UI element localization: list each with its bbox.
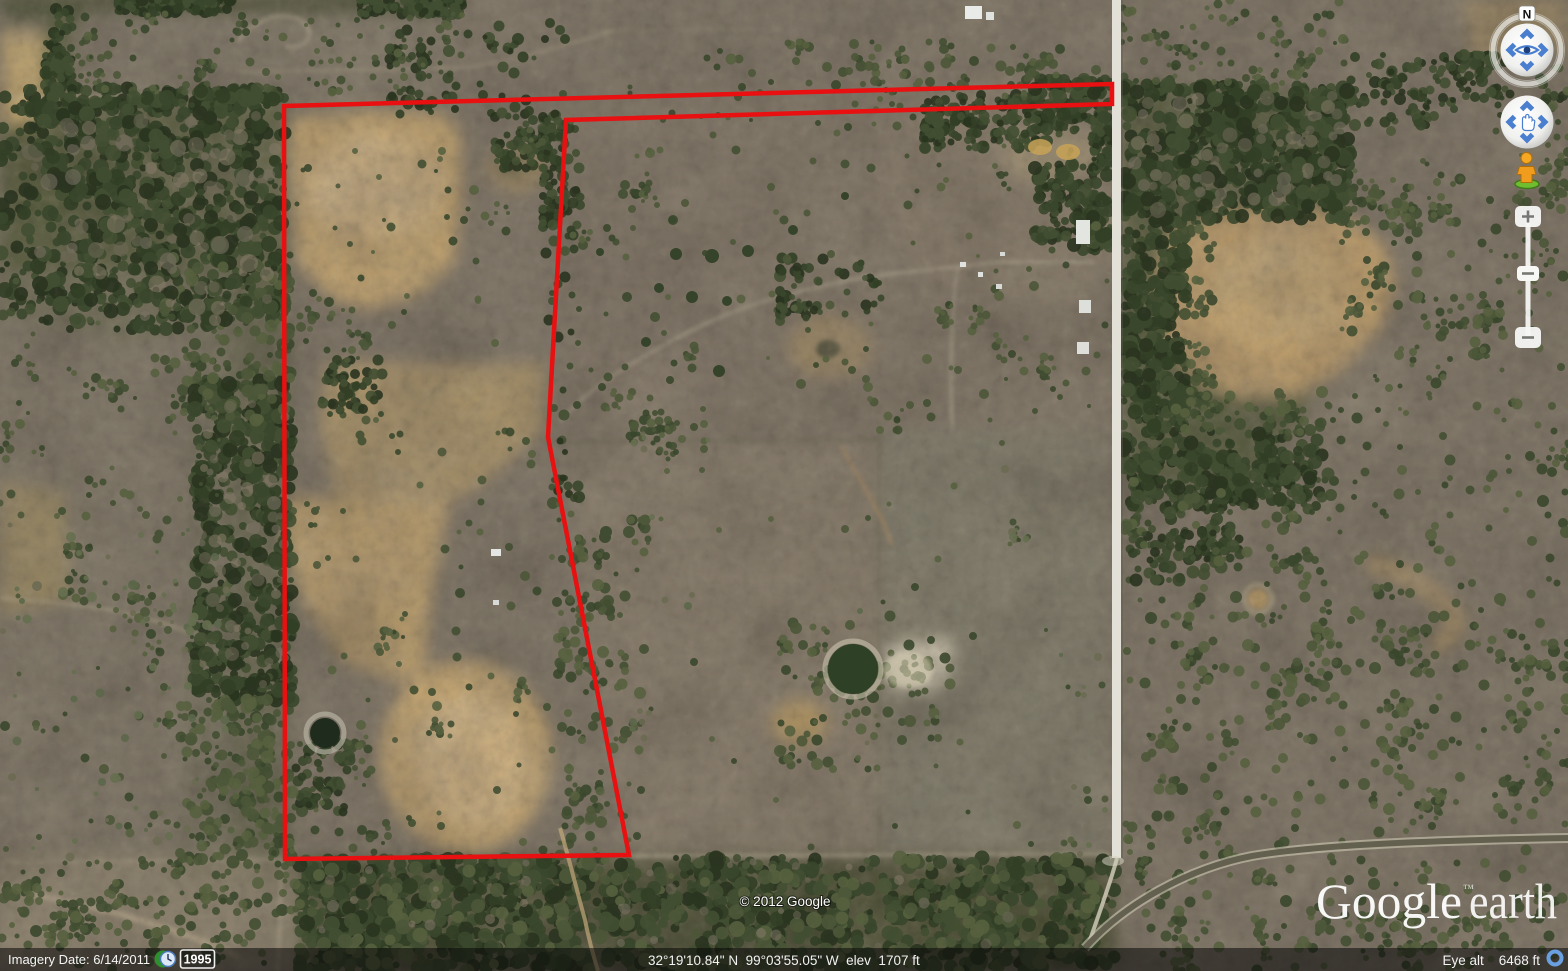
svg-text:Imagery Date: 6/14/2011: Imagery Date: 6/14/2011 xyxy=(8,952,150,967)
svg-text:N: N xyxy=(1523,8,1532,22)
svg-text:© 2012 Google: © 2012 Google xyxy=(739,894,830,909)
svg-text:1995: 1995 xyxy=(184,953,212,967)
svg-text:Google: Google xyxy=(1316,873,1462,929)
svg-text:32°19'10.84" N 99°03'55.05" W: 32°19'10.84" N 99°03'55.05" W elev 1707 … xyxy=(648,953,920,968)
svg-text:earth: earth xyxy=(1469,873,1557,929)
svg-text:Eye alt 6468 ft: Eye alt 6468 ft xyxy=(1442,953,1540,968)
